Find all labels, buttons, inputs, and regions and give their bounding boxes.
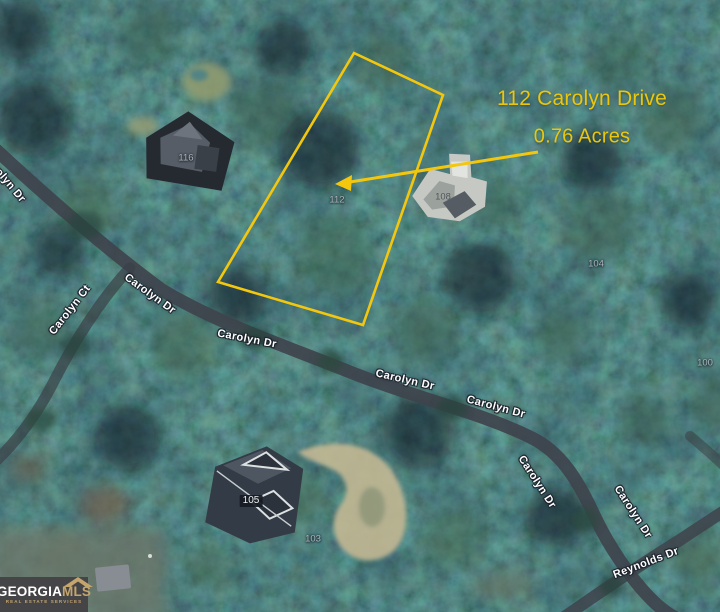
georgia-mls-wordmark: GEORGIAMLS (0, 585, 91, 599)
driveway-island (359, 487, 385, 527)
georgia-mls-logo: GEORGIAMLS REAL ESTATE SERVICES (0, 577, 88, 612)
logo-brand-primary: GEORGIA (0, 585, 62, 599)
satellite-imagery (0, 0, 720, 612)
aerial-map-canvas: Carolyn Dr Carolyn Ct Carolyn Dr Carolyn… (0, 0, 720, 612)
roof-icon (63, 577, 93, 587)
logo-tagline: REAL ESTATE SERVICES (6, 600, 82, 605)
logo-brand-secondary: MLS (62, 585, 91, 599)
